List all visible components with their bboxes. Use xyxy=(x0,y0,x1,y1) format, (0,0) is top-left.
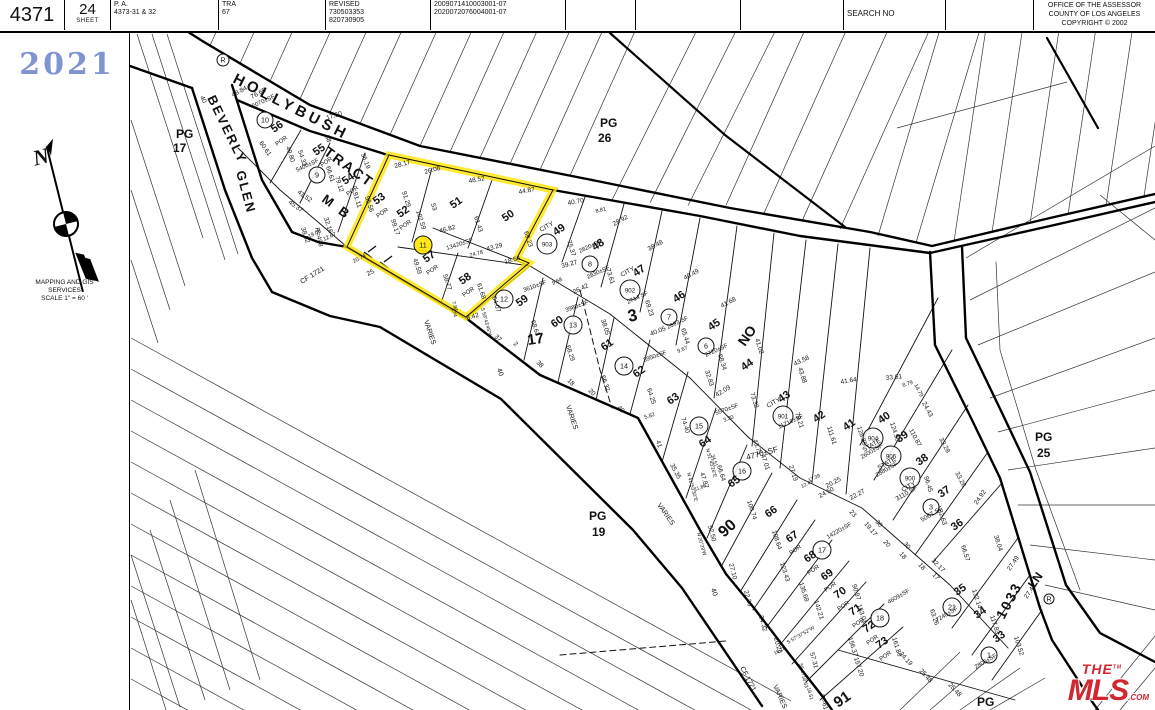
map-label-road: CF 1721 xyxy=(299,265,326,285)
map-label-dim: 58.77 xyxy=(441,273,453,291)
map-label-dim: 33.28 xyxy=(953,471,967,489)
map-label-lot: 66 xyxy=(763,504,780,521)
map-label-dim: 27.19 xyxy=(787,464,799,482)
map-label-lot: 51 xyxy=(448,195,465,212)
map-label-dim: 43.88 xyxy=(796,366,808,384)
map-label-dim: 63.26 xyxy=(928,608,940,626)
map-label-dim: 11.86 xyxy=(694,483,708,493)
svg-text:13: 13 xyxy=(569,320,577,329)
svg-text:R: R xyxy=(220,55,225,64)
map-label-road: CF 1721 xyxy=(738,666,757,693)
map-label-dim: 38.05 xyxy=(599,318,611,336)
parcel-circle-9: 9 xyxy=(309,167,325,183)
map-label-lot: 44 xyxy=(739,356,757,373)
map-label-dim: 54.33 xyxy=(296,149,308,167)
map-label-dim: 38.04 xyxy=(992,534,1004,552)
map-label-dim: 40.49 xyxy=(683,268,701,282)
map-label-dim: 28.17 xyxy=(394,159,412,170)
left-margin: 2021 MAPPING AND GIS SERVICES SCALE 1" =… xyxy=(0,31,130,710)
map-label-pg: PG xyxy=(1035,430,1052,444)
empty-cell xyxy=(635,0,740,30)
map-label-dim: 68.29 xyxy=(564,344,576,362)
map-text-labels: HOLLYBUSHTRACTM BBEVERLYGLENNOLNVARIESVA… xyxy=(173,70,1052,710)
map-label-dim: N 20°29'W xyxy=(695,532,707,557)
svg-text:10: 10 xyxy=(261,115,269,124)
svg-text:8: 8 xyxy=(588,259,592,268)
map-label-dim: 40.05 xyxy=(649,325,667,338)
map-label-dim: 49.59 xyxy=(411,257,423,275)
map-label-dim: 57.31 xyxy=(808,652,819,670)
map-label-lot: 63 xyxy=(665,391,682,408)
svg-text:7: 7 xyxy=(667,312,671,321)
map-label-dim: 41.52 xyxy=(296,189,314,204)
document-numbers-cell: 2009071410003001-072020072076004001-07 xyxy=(430,0,565,30)
map-label-dim: 128.85 xyxy=(855,425,868,446)
map-label-dim: 12.41 xyxy=(800,479,814,490)
map-label-lot: 59 xyxy=(514,293,531,310)
svg-text:16: 16 xyxy=(738,466,746,475)
map-label-dim: 49.80 xyxy=(284,145,296,163)
assessor-map-sheet: 1091112131415161718218763190390290190490… xyxy=(0,0,1155,710)
svg-text:R: R xyxy=(1046,594,1051,603)
parcel-circle-15: 15 xyxy=(690,417,708,435)
map-label-dim: 9.67 xyxy=(677,345,689,355)
map-label-dim: 66.32 xyxy=(599,374,611,392)
map-label-dim: 24.92 xyxy=(973,488,988,506)
map-label-dim: 8.79 xyxy=(902,380,914,389)
map-label-dim: 65.44 xyxy=(679,327,691,345)
map-label-road: 40 xyxy=(495,367,504,377)
map-label-dim: 12.67 xyxy=(322,232,337,243)
map-label-dim: 25 xyxy=(366,268,376,278)
map-label-dim: 41.64 xyxy=(840,376,858,386)
map-label-dim: 60.61 xyxy=(257,140,272,158)
map-label-street: HOLLYBUSH xyxy=(230,70,352,143)
map-label-dim: 33.61 xyxy=(885,373,902,382)
map-label-dim: 156.37 xyxy=(846,636,859,657)
map-label-dim: 96.45 xyxy=(922,475,934,493)
map-label-dim: 32.17 xyxy=(930,557,947,574)
map-label-lot: 64 xyxy=(697,433,715,450)
map-label-dim: 22.36 xyxy=(742,590,753,608)
map-label-dim: 42.09 xyxy=(714,384,732,399)
map-label-por: POR xyxy=(879,650,894,663)
svg-text:12: 12 xyxy=(500,294,508,303)
map-label-dim: 24.43 xyxy=(920,401,934,419)
svg-text:9: 9 xyxy=(315,170,319,179)
map-label-dim: 30 xyxy=(873,519,883,529)
map-label-dim: 123.43 xyxy=(778,561,791,582)
map-label-pg: PG xyxy=(977,695,994,709)
map-label-dim: 43.29 xyxy=(486,242,504,253)
map-label-lot: 46 xyxy=(671,289,688,306)
map-label-por: POR xyxy=(789,544,804,557)
tra-cell: TRA67 xyxy=(218,0,325,30)
search-no-cell: SEARCH NO xyxy=(843,0,945,30)
map-label-lot: 50 xyxy=(500,208,517,225)
map-label-pg: 25 xyxy=(1037,446,1051,460)
compass-canvas: N xyxy=(0,31,129,710)
map-label-big: 90 xyxy=(715,516,740,541)
pa-cell: P. A.4373-31 & 32 xyxy=(110,0,218,30)
map-label-lot: 36 xyxy=(949,517,966,534)
map-label-dim: 99.17 xyxy=(389,218,401,236)
themls-logo: THETM MLS.COM xyxy=(1068,662,1149,706)
assessor-office-cell: OFFICE OF THE ASSESSORCOUNTY OF LOS ANGE… xyxy=(1033,0,1155,30)
map-label-big: 3 xyxy=(626,305,639,326)
map-label-dim: 39.27 xyxy=(561,259,579,270)
map-label-por: POR xyxy=(426,264,441,277)
map-label-dim: 45.37 xyxy=(287,199,305,214)
map-label-pg: PG xyxy=(600,116,617,130)
map-label-dim: 91.11 xyxy=(351,191,363,209)
map-label-dim: 38.48 xyxy=(647,239,665,253)
svg-text:14: 14 xyxy=(620,361,628,370)
map-label-lot: 60 xyxy=(549,314,566,331)
map-label-dim: 66.57 xyxy=(959,544,971,562)
map-label-road: VARIES xyxy=(655,502,675,527)
map-label-dim: 38 xyxy=(323,134,332,144)
parcel-circle-14: 14 xyxy=(615,357,633,375)
map-label-road: VARIES xyxy=(564,404,579,430)
map-label-dim: 20 xyxy=(881,539,891,549)
map-label-dim: 73.61 xyxy=(604,267,616,285)
map-label-dim: 38 xyxy=(535,359,545,369)
map-label-dim: 90.97 xyxy=(850,583,862,601)
map-label-lot: 41 xyxy=(841,417,858,434)
map-label-dim: R=612 xyxy=(818,694,830,710)
map-label-dim: 24.32 xyxy=(757,615,768,633)
title-block: 4371 24 SHEET P. A.4373-31 & 32 TRA67 RE… xyxy=(0,0,1155,33)
svg-text:11: 11 xyxy=(419,240,426,249)
map-label-por: POR xyxy=(462,286,477,299)
map-label-lot: 35 xyxy=(952,582,969,599)
map-book-number: 4371 xyxy=(0,0,64,30)
map-label-big: 1033 xyxy=(993,579,1026,621)
map-label-dim: 23 xyxy=(847,509,857,519)
map-label-road: 40 xyxy=(709,587,718,597)
parcel-circle-903: 903 xyxy=(537,234,557,254)
map-label-dim: 103.52 xyxy=(1012,635,1025,656)
map-label-lot: 58 xyxy=(457,271,474,288)
map-label-dim: 69.23 xyxy=(643,299,655,317)
map-label-por: POR xyxy=(376,207,391,220)
map-label-dim: 157.20 xyxy=(852,656,865,677)
map-label-dim: 22.27 xyxy=(849,488,867,502)
map-label-dim: 44.87 xyxy=(518,186,536,196)
map-label-dim: 8.81 xyxy=(595,206,607,215)
svg-text:18: 18 xyxy=(876,613,884,622)
svg-text:901: 901 xyxy=(778,413,789,420)
parcel-circle-13: 13 xyxy=(564,316,582,334)
map-label-dim: 61.68 xyxy=(475,282,487,300)
map-label-dim: 73.32 xyxy=(748,391,760,409)
map-label-dim: 18 xyxy=(897,551,907,561)
map-label-dim: 5.82 xyxy=(644,412,656,421)
svg-text:6: 6 xyxy=(704,341,708,350)
parcel-circle-8: 8 xyxy=(582,256,598,272)
map-label-dim: 3.30 xyxy=(723,415,735,424)
map-label-dim: 74.40 xyxy=(679,416,691,434)
map-label-dim: 28.92 xyxy=(612,214,630,228)
sheet-number: 24 SHEET xyxy=(64,0,110,30)
map-label-dim: 47.01 xyxy=(759,453,771,471)
map-label-pg: 17 xyxy=(173,141,187,155)
map-label-dim: S 59°43'45"W xyxy=(479,307,493,339)
map-label-pg: PG xyxy=(589,509,606,523)
map-label-dim: 17 xyxy=(930,572,940,582)
map-label-dim: 32.83 xyxy=(703,369,715,387)
map-label-dim: 25.48 xyxy=(918,668,934,685)
map-label-pg: 19 xyxy=(592,525,606,539)
map-label-dim: 24.78 xyxy=(469,250,484,259)
map-label-dim: 14.79 xyxy=(912,383,924,398)
map-label-dim: 41.68 xyxy=(720,296,738,310)
parcel-circle-R: R xyxy=(1044,594,1054,604)
map-label-dim: 33.28 xyxy=(937,437,951,455)
map-label-dim: 111.61 xyxy=(825,425,838,446)
parcel-map-canvas: 1091112131415161718218763190390290190490… xyxy=(0,0,1155,710)
map-label-sf: 5570±SF xyxy=(715,403,740,417)
map-label-road: VARIES xyxy=(422,319,437,345)
svg-text:15: 15 xyxy=(695,421,703,430)
map-label-dim: 48.52 xyxy=(468,175,486,185)
map-label-pg: PG xyxy=(176,127,193,141)
svg-text:17: 17 xyxy=(818,545,826,554)
map-label-lot: 61 xyxy=(599,337,616,354)
map-label-dim: 53 xyxy=(429,202,438,211)
empty-cell xyxy=(945,0,1033,30)
map-label-dim: 2 xyxy=(512,340,520,348)
map-label-road: VARIES xyxy=(771,684,788,710)
map-label-lot: 42 xyxy=(811,409,828,426)
map-label-lot: 45 xyxy=(706,317,723,334)
map-label-sf: 13420±SF xyxy=(446,238,474,252)
map-label-dim: 132.14 xyxy=(970,588,983,609)
map-label-pg: 26 xyxy=(598,131,612,145)
map-label-sf: 4609±SF xyxy=(887,588,911,606)
map-label-sf: 3610±SF xyxy=(523,280,548,294)
map-label-sf: 14220±SF xyxy=(826,522,853,541)
map-label-dim: 135.68 xyxy=(797,581,810,602)
map-label-big: 91 xyxy=(831,688,854,710)
assessor-parcel-circles: 1091112131415161718218763190390290190490… xyxy=(217,54,1054,663)
map-label-lot: 37 xyxy=(936,484,953,501)
svg-text:902: 902 xyxy=(625,287,636,294)
map-label-dim: 37 xyxy=(493,333,503,343)
map-label-dim: 27.49 xyxy=(1006,554,1021,572)
map-label-dim: 18.51 xyxy=(805,687,814,701)
map-label-lot: 67 xyxy=(784,529,801,546)
map-label-street: GLEN xyxy=(233,169,259,216)
svg-text:903: 903 xyxy=(542,241,553,248)
revised-cell: REVISED730503353820730905 xyxy=(325,0,430,30)
map-label-dim: 64.25 xyxy=(645,387,657,405)
empty-cell xyxy=(740,0,843,30)
empty-cell xyxy=(565,0,635,30)
map-label-dim: 24.19 xyxy=(898,651,914,668)
map-label-dim: 124.98 xyxy=(888,421,901,442)
parcel-circle-R: R xyxy=(217,54,229,66)
map-label-dim: 142.21 xyxy=(812,599,825,620)
